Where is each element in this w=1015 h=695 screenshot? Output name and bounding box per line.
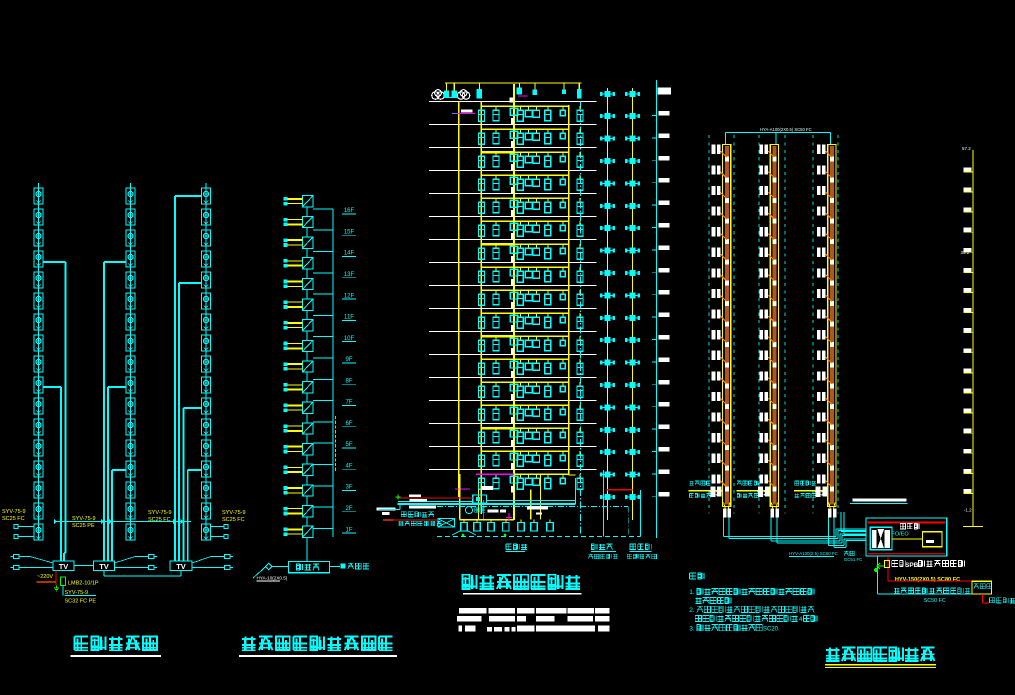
svg-text:9F: 9F (345, 357, 352, 363)
svg-text:HYA-A100(2X0.5) SC50 FC: HYA-A100(2X0.5) SC50 FC (760, 127, 812, 132)
svg-text:GC51 FC: GC51 FC (844, 557, 863, 562)
svg-text:142: 142 (814, 492, 825, 498)
svg-text:SC20.: SC20. (763, 627, 780, 633)
svg-text:14F: 14F (344, 251, 355, 257)
svg-text:8F: 8F (345, 378, 352, 384)
svg-text:SYV-75-9: SYV-75-9 (2, 509, 26, 515)
svg-text:11F: 11F (344, 315, 354, 321)
svg-text:57.2: 57.2 (962, 146, 971, 151)
svg-text:3.: 3. (689, 626, 695, 633)
svg-text:16F: 16F (344, 208, 355, 214)
svg-text:15F: 15F (344, 229, 355, 235)
svg-text:SYV-75-9: SYV-75-9 (72, 516, 96, 522)
svg-text:2.: 2. (689, 607, 695, 614)
svg-text:35.2: 35.2 (961, 250, 970, 255)
svg-text:1.: 1. (689, 589, 695, 596)
svg-text:5F: 5F (345, 442, 352, 448)
svg-text:LMB2-10/1P: LMB2-10/1P (68, 581, 99, 587)
svg-text:4F: 4F (345, 463, 352, 469)
svg-text:-1.2: -1.2 (964, 508, 972, 513)
svg-text:SC32 FC PE: SC32 FC PE (65, 599, 97, 605)
svg-text:TV: TV (59, 562, 69, 571)
svg-text:142: 142 (709, 492, 720, 498)
svg-text:SYV-75-9: SYV-75-9 (222, 510, 246, 516)
svg-text:SC50 FC: SC50 FC (924, 598, 946, 604)
svg-text:TV: TV (99, 562, 109, 571)
svg-text:FO/EO: FO/EO (892, 532, 910, 538)
svg-text:SPB: SPB (905, 562, 919, 569)
svg-text:10F: 10F (344, 336, 355, 342)
svg-text:6F: 6F (345, 421, 352, 427)
svg-text:1F: 1F (345, 527, 352, 533)
svg-text:SC25 FC: SC25 FC (148, 517, 171, 523)
svg-text:13F: 13F (344, 272, 355, 278)
svg-text:3F: 3F (345, 485, 352, 491)
svg-text:HYV-A100(2.5) SC50 FC: HYV-A100(2.5) SC50 FC (789, 551, 838, 556)
svg-text:SC25 FC: SC25 FC (222, 517, 245, 523)
svg-text:142: 142 (757, 492, 768, 498)
svg-text:12F: 12F (344, 293, 355, 299)
svg-text:HYA-10(2X0.5): HYA-10(2X0.5) (257, 576, 288, 581)
svg-text:SC25 PE: SC25 PE (72, 523, 95, 529)
svg-text:TV: TV (176, 562, 186, 571)
svg-text:7F: 7F (345, 400, 352, 406)
svg-text:SC25 FC: SC25 FC (2, 516, 25, 522)
svg-text:SYV-75-9: SYV-75-9 (148, 510, 172, 516)
svg-text:SYV-75-9: SYV-75-9 (65, 590, 89, 596)
svg-text:HYV-150(2X0.5) SC80 FC: HYV-150(2X0.5) SC80 FC (895, 577, 960, 583)
svg-text::: : (703, 574, 705, 581)
svg-text:~220V: ~220V (37, 574, 53, 580)
svg-text:2F: 2F (345, 506, 352, 512)
